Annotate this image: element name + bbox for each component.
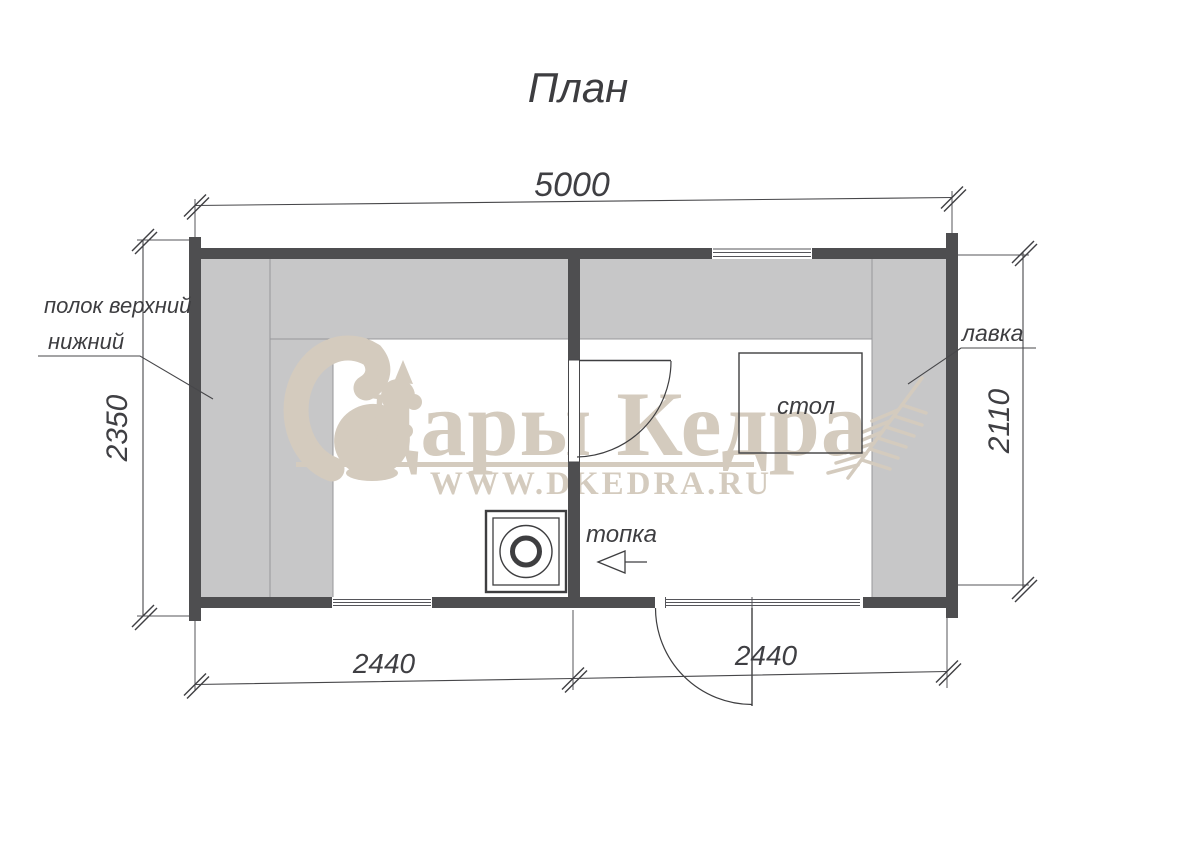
page-title: План bbox=[528, 64, 629, 111]
shelf-label-line2: нижний bbox=[48, 329, 124, 354]
dimension-tick-mark bbox=[941, 187, 966, 212]
table-label: стол bbox=[777, 393, 836, 420]
watermark-brand-text: Дары Кедра bbox=[356, 373, 868, 475]
watermark: Дары Кедра WWW.DKEDRA.RU bbox=[296, 348, 926, 502]
dimension-value-2110: 2110 bbox=[983, 388, 1016, 454]
firebox-label: топка bbox=[586, 521, 657, 548]
wall-partition-lower bbox=[568, 462, 580, 597]
floor-plan-canvas: Дары Кедра WWW.DKEDRA.RU bbox=[0, 0, 1200, 848]
dimension-2110: 2110 bbox=[958, 241, 1037, 602]
dimension-tick-mark bbox=[562, 668, 587, 693]
watermark-url-text: WWW.DKEDRA.RU bbox=[430, 466, 772, 502]
dimension-tick-mark bbox=[1012, 577, 1037, 602]
dimension-tick-mark bbox=[184, 195, 209, 220]
dimension-tick-mark bbox=[184, 674, 209, 699]
dimension-tick-mark bbox=[1012, 241, 1037, 266]
dimension-tick-mark bbox=[132, 605, 157, 630]
dimension-tick-mark bbox=[936, 661, 961, 686]
dimension-2440-pair: 2440 2440 bbox=[184, 610, 961, 699]
entry-opening bbox=[655, 597, 863, 608]
wall-partition-upper bbox=[568, 259, 580, 360]
dimension-line bbox=[195, 672, 947, 685]
dimension-2350: 2350 bbox=[101, 229, 189, 630]
shelf-columns-left bbox=[201, 259, 333, 597]
wall-bottom-segment-2 bbox=[432, 597, 655, 608]
dimension-tick-mark bbox=[132, 229, 157, 254]
wall-right bbox=[946, 233, 958, 618]
shelf-label-line1: полок верхний bbox=[44, 293, 191, 318]
wall-bottom-segment-1 bbox=[201, 597, 332, 608]
dimension-value-2440-right: 2440 bbox=[734, 640, 798, 671]
dimension-value-2440-left: 2440 bbox=[352, 648, 416, 679]
label-firebox: топка bbox=[586, 521, 657, 573]
window-top bbox=[712, 246, 812, 259]
label-shelf: полок верхний нижний bbox=[38, 293, 213, 399]
wall-bottom-segment-3 bbox=[863, 597, 946, 608]
wall-top-segment-2 bbox=[812, 248, 946, 259]
bench-label: лавка bbox=[960, 320, 1023, 346]
stove-top-symbol bbox=[486, 511, 566, 592]
wall-top-segment-1 bbox=[201, 248, 712, 259]
dimension-value-2350: 2350 bbox=[101, 394, 134, 462]
interior-door-panel bbox=[569, 360, 580, 462]
dimension-5000: 5000 bbox=[184, 166, 966, 237]
shelf-leader-line bbox=[38, 356, 213, 399]
window-bottom-left bbox=[332, 597, 432, 608]
arrow-left-head bbox=[598, 551, 625, 573]
stove-outer-frame bbox=[486, 511, 566, 592]
dimension-value-5000: 5000 bbox=[534, 166, 610, 204]
